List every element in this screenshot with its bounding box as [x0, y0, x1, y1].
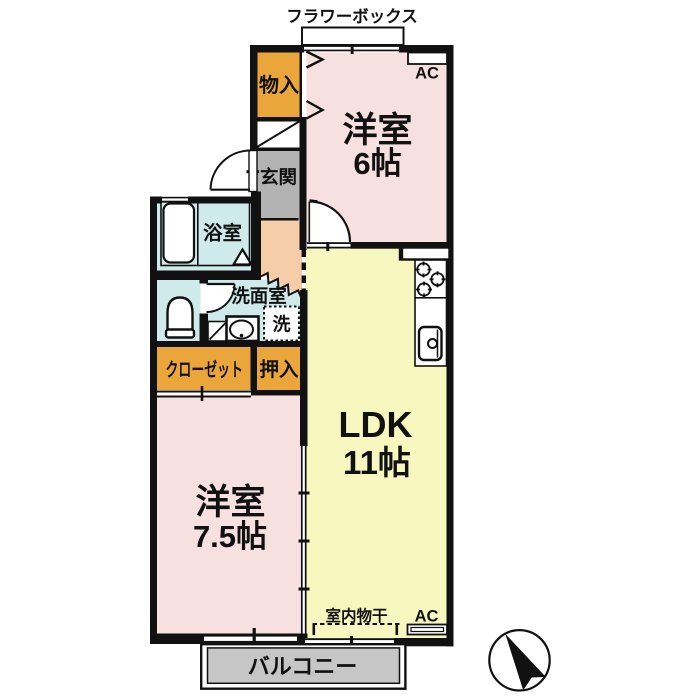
- svg-text:洋室: 洋室: [342, 110, 412, 150]
- svg-text:玄関: 玄関: [260, 167, 297, 188]
- svg-text:室内物干: 室内物干: [325, 606, 387, 625]
- svg-text:洗: 洗: [273, 314, 291, 335]
- svg-text:クローゼット: クローゼット: [166, 358, 244, 381]
- svg-text:洋室: 洋室: [195, 482, 265, 522]
- svg-text:LDK: LDK: [339, 404, 413, 445]
- svg-text:AC: AC: [415, 608, 439, 626]
- svg-text:浴室: 浴室: [203, 222, 242, 245]
- svg-text:AC: AC: [415, 65, 439, 83]
- svg-text:押入: 押入: [259, 358, 299, 381]
- svg-text:7.5帖: 7.5帖: [193, 519, 267, 554]
- svg-text:バルコニー: バルコニー: [248, 654, 358, 679]
- svg-text:6帖: 6帖: [353, 146, 401, 181]
- svg-text:洗面室: 洗面室: [231, 286, 287, 307]
- svg-text:フラワーボックス: フラワーボックス: [286, 7, 418, 26]
- svg-text:物入: 物入: [259, 73, 299, 97]
- svg-text:11帖: 11帖: [343, 444, 411, 481]
